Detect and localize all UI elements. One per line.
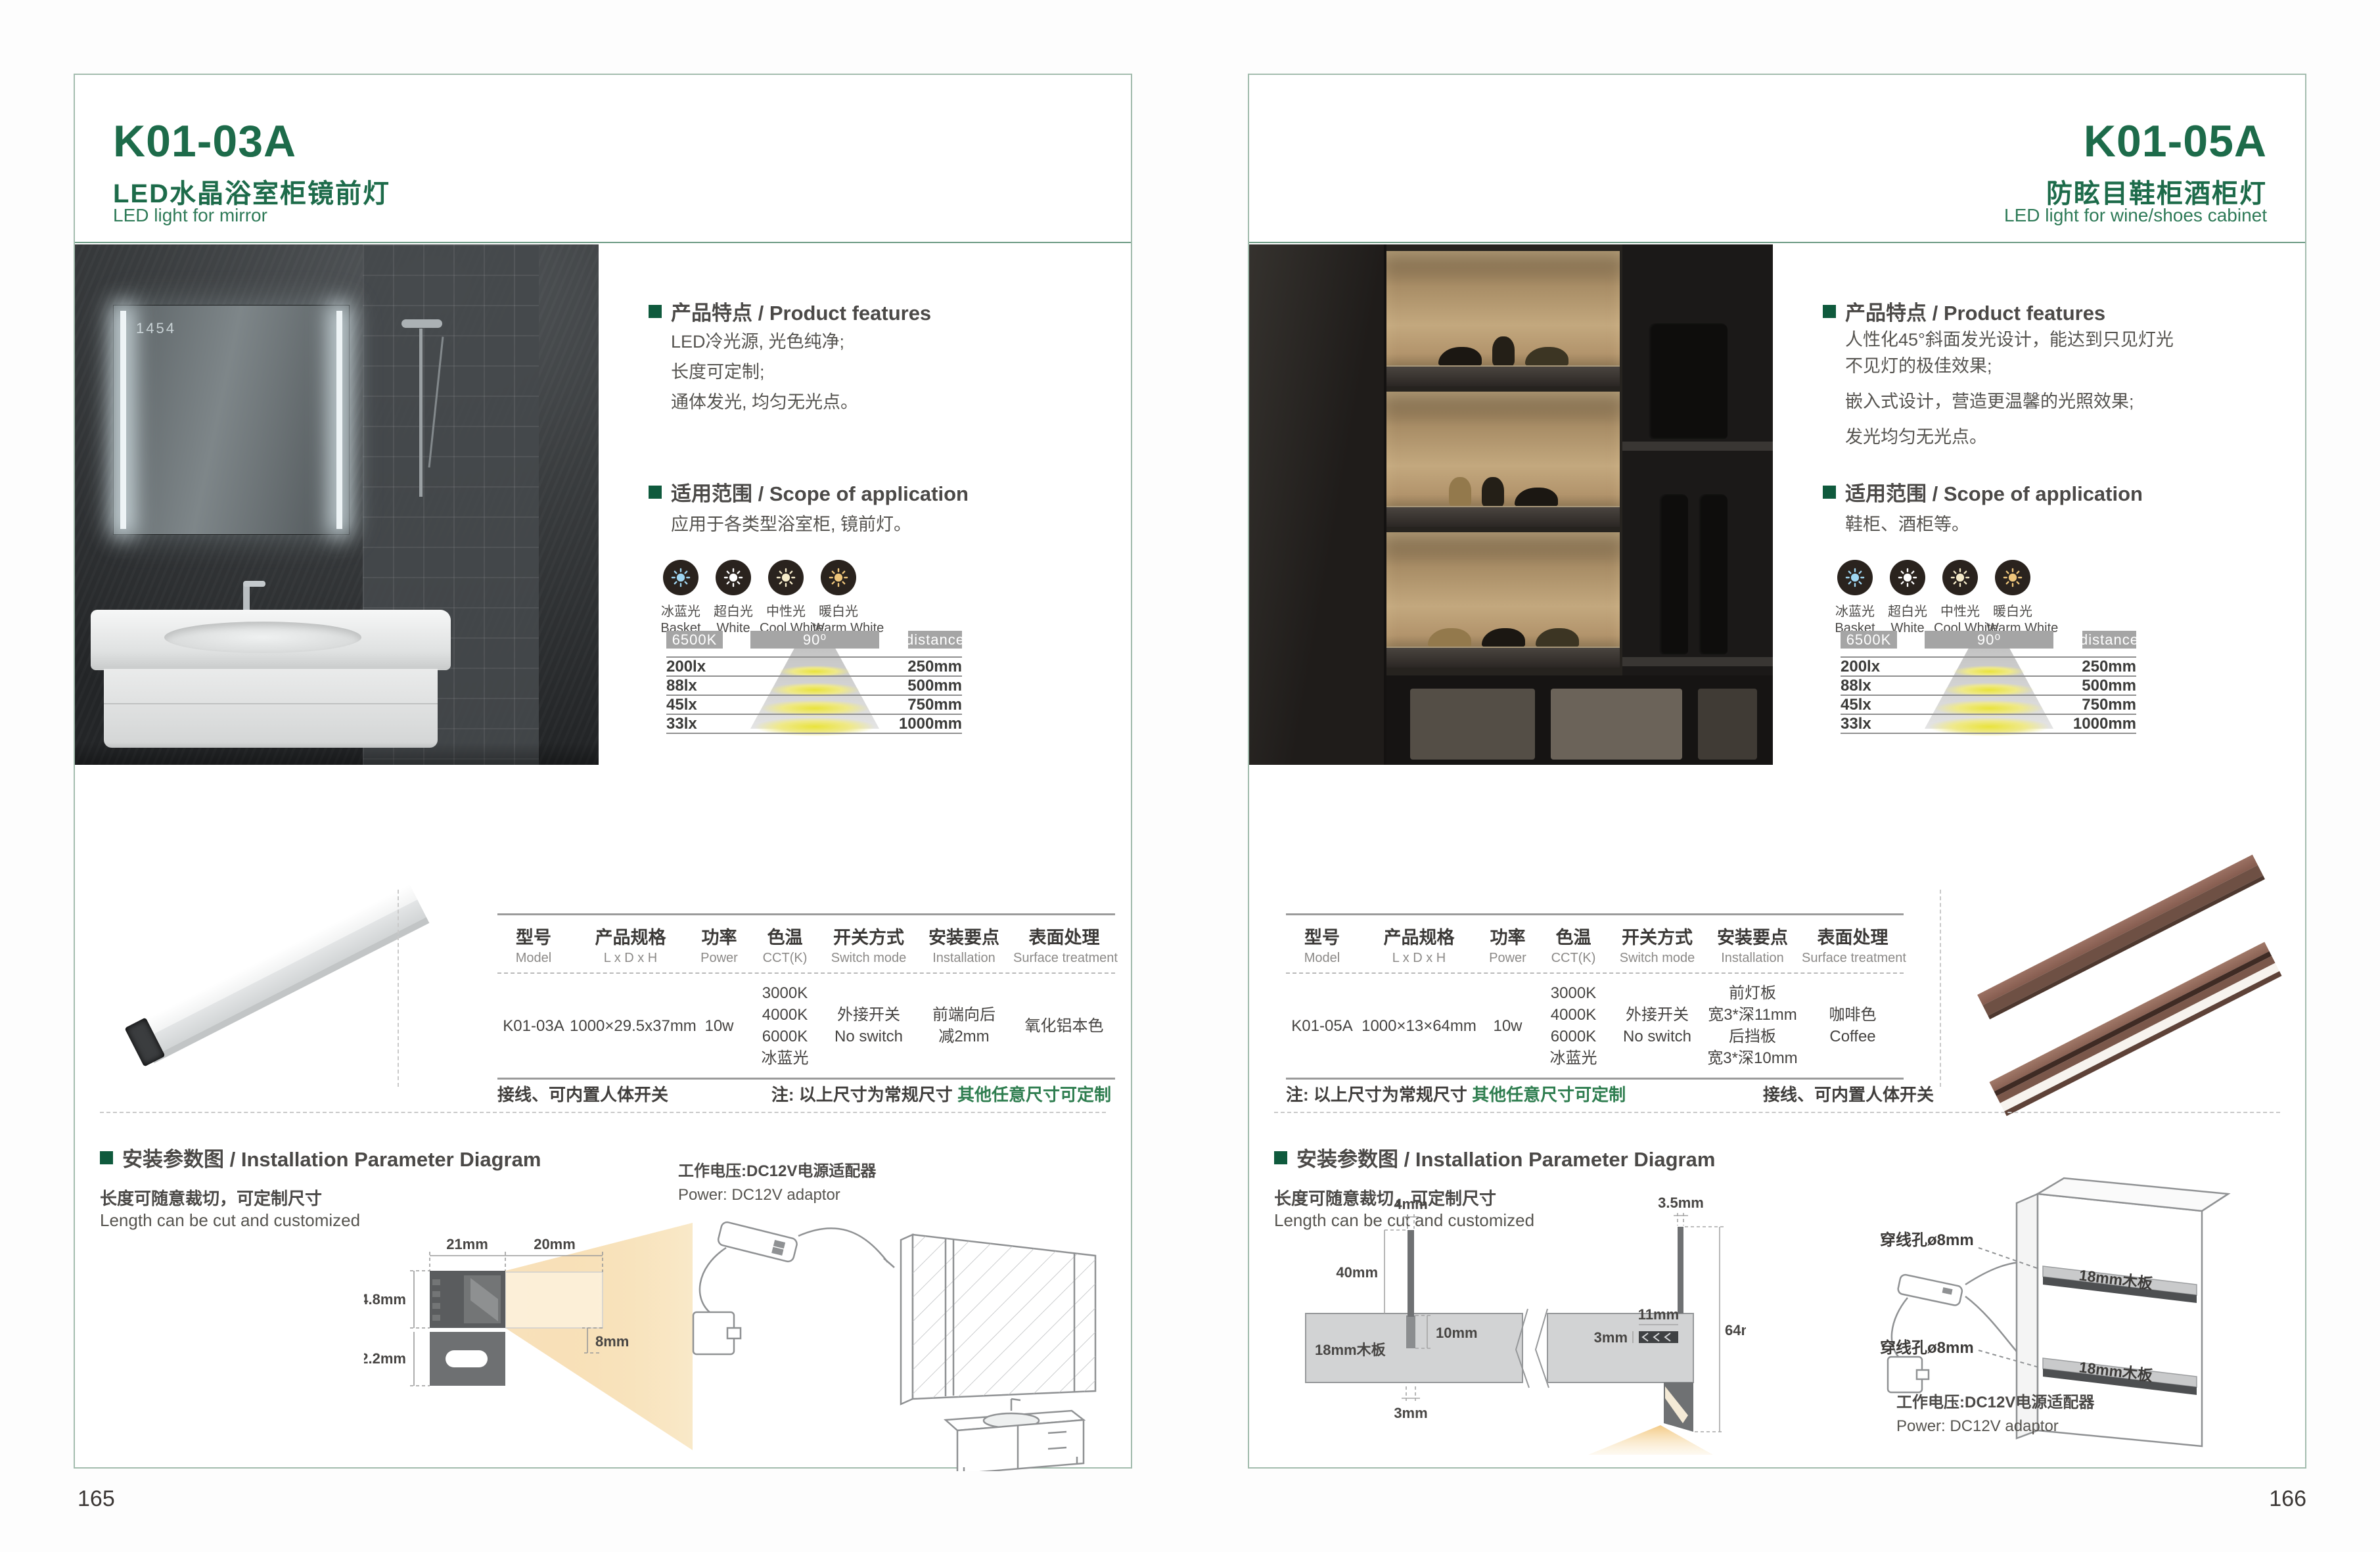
dim-14-8mm: 14.8mm <box>364 1291 406 1308</box>
shoe-silhouette <box>1536 628 1579 648</box>
power-note-en: Power: DC12V adaptor <box>678 1186 876 1204</box>
spec-table: 型号 Model 产品规格 L x D x H 功率 Power 色温 CCT(… <box>1286 913 1904 1080</box>
beam-angle-bar: 90⁰ <box>1925 631 2053 649</box>
beam-angle-bar: 90⁰ <box>750 631 879 649</box>
profile-bottom-lip <box>2004 971 2281 1116</box>
size-note-prefix: 注: 以上尺寸为常规尺寸 <box>1286 1085 1472 1105</box>
spec-header-cn: 表面处理 <box>1013 923 1115 949</box>
light-mode-name-cn: 冰蓝光 <box>654 601 707 620</box>
lux-distance-row: 200lx 250mm <box>666 656 962 675</box>
spec-header-cell: 色温 CCT(K) <box>1536 923 1611 966</box>
size-note: 注: 以上尺寸为常规尺寸 其他任意尺寸可定制 <box>1286 1082 1626 1106</box>
adaptor-and-socket <box>693 1221 894 1354</box>
cct-bar: 6500K <box>1841 631 1897 649</box>
spec-cell: 前端向后 减2mm <box>915 1004 1013 1047</box>
dim-8mm: 8mm <box>595 1333 629 1350</box>
spec-header-en: Model <box>497 951 570 966</box>
spec-header-cn: 功率 <box>691 923 747 949</box>
catalog-page-right: K01-05A 防眩目鞋柜酒柜灯 LED light for wine/shoe… <box>1248 74 2306 1469</box>
spec-header-cell: 开关方式 Switch mode <box>823 923 915 966</box>
lux-distance-rows: 200lx 250mm 88lx 500mm 45lx 750mm 33lx 1… <box>666 656 962 734</box>
scope-text: 鞋柜、酒柜等。 <box>1845 510 1969 536</box>
lux-value: 45lx <box>1841 696 1871 714</box>
section-bullet-icon <box>649 305 662 318</box>
photo-basin <box>164 622 361 653</box>
spec-header-cn: 产品规格 <box>570 923 691 949</box>
light-mode: 中性光 Cool White <box>760 560 812 636</box>
light-mode-name-cn: 冰蓝光 <box>1829 601 1881 620</box>
sun-icon <box>1942 560 1978 595</box>
light-mode: 冰蓝光 Basket <box>654 560 707 636</box>
spec-header-cell: 色温 CCT(K) <box>747 923 823 966</box>
dim-4mm: 4mm <box>1394 1196 1427 1212</box>
right-shelf-board <box>1622 442 1773 451</box>
spec-table: 型号 Model 产品规格 L x D x H 功率 Power 色温 CCT(… <box>497 913 1115 1080</box>
shoe-silhouette <box>1482 477 1504 507</box>
spec-header-cn: 开关方式 <box>823 923 915 949</box>
product-model-title: K01-03A <box>113 116 296 167</box>
light-mode-name-cn: 暖白光 <box>812 601 865 620</box>
spec-cell: 1000×13×64mm <box>1358 1015 1480 1037</box>
wood-board-right <box>1547 1313 1693 1382</box>
lit-shelf <box>1386 392 1620 527</box>
profile-product-image <box>134 867 410 1090</box>
lux-distance-row: 33lx 1000mm <box>666 714 962 734</box>
mirror-clock: 1454 <box>136 320 176 337</box>
lux-value: 33lx <box>1841 715 1871 733</box>
photo-shower-bar <box>419 329 423 497</box>
light-mode: 超白光 White <box>707 560 760 636</box>
photo-left-panel <box>1249 244 1386 765</box>
spec-table-row: K01-03A 1000×29.5x37mm 10w 3000K 4000K 6… <box>497 974 1115 1080</box>
light-mode: 超白光 White <box>1881 560 1934 636</box>
spec-cell: 3000K 4000K 6000K 冰蓝光 <box>1536 982 1611 1069</box>
boot-silhouette <box>1699 494 1728 654</box>
spec-header-en: Model <box>1286 951 1358 966</box>
dim-3mm-groove: 3mm <box>1394 1405 1427 1421</box>
spec-cell: 外接开关 No switch <box>823 1004 915 1047</box>
features-heading-label: 产品特点 / Product features <box>1845 296 2105 326</box>
lux-distance-row: 33lx 1000mm <box>1841 714 2136 734</box>
vanity-drawing <box>946 1399 1084 1471</box>
board-label: 18mm木板 <box>1315 1342 1386 1358</box>
scope-section-heading: 适用范围 / Scope of application <box>649 477 969 507</box>
spec-header-cn: 功率 <box>1480 923 1536 949</box>
feature-item: 人性化45°斜面发光设计，能达到只见灯光 不见灯的极佳效果; <box>1845 327 2279 379</box>
light-mode: 暖白光 Warm White <box>812 560 865 636</box>
spec-header-en: CCT(K) <box>1536 951 1611 966</box>
scope-text: 应用于各类型浴室柜, 镜前灯。 <box>671 510 911 536</box>
photo-floor-shadow <box>75 742 599 765</box>
spec-header-en: Power <box>691 951 747 966</box>
spec-header-cn: 表面处理 <box>1802 923 1904 949</box>
light-mode-icons: 冰蓝光 Basket 超白光 Whi <box>654 560 865 636</box>
spec-header-en: CCT(K) <box>747 951 823 966</box>
dim-12-2mm: 12.2mm <box>364 1350 406 1367</box>
photo-vanity-cabinet <box>104 669 438 748</box>
profile-gap <box>430 1328 505 1332</box>
spec-cell: 3000K 4000K 6000K 冰蓝光 <box>747 982 823 1069</box>
lux-value: 33lx <box>666 715 697 733</box>
shoes-row <box>1392 326 1614 367</box>
spec-cell: 氧化铝本色 <box>1013 1015 1115 1037</box>
shelf-board <box>1386 365 1620 386</box>
spec-cell: 外接开关 No switch <box>1611 1004 1703 1047</box>
spec-header-en: L x D x H <box>1358 951 1480 966</box>
scope-section-heading: 适用范围 / Scope of application <box>1823 477 2143 507</box>
profile-bottom-lip <box>151 917 429 1063</box>
section-bullet-icon <box>1823 486 1836 499</box>
feature-item: 长度可定制; <box>671 357 1105 387</box>
feature-item: LED冷光源, 光色纯净; <box>671 327 1105 357</box>
lux-distance-row: 88lx 500mm <box>666 675 962 695</box>
dim-20mm: 20mm <box>534 1236 576 1252</box>
spec-table-header: 型号 Model 产品规格 L x D x H 功率 Power 色温 CCT(… <box>1286 913 1904 974</box>
lux-value: 200lx <box>1841 658 1880 676</box>
lux-distance-row: 200lx 250mm <box>1841 656 2136 675</box>
wiring-note: 接线、可内置人体开关 <box>497 1082 668 1106</box>
sun-glyph <box>2002 567 2023 588</box>
beam-distance-chart: 6500K 90⁰ distance 200lx 250mm 88lx 500m… <box>1841 631 2136 729</box>
dim-11mm: 11mm <box>1638 1306 1679 1323</box>
distance-bar: distance <box>2082 631 2136 649</box>
light-beam <box>1588 1425 1713 1455</box>
distance-value: 1000mm <box>899 715 962 733</box>
photo-lit-shelf-bay <box>1386 251 1620 673</box>
cable-hole-label: 穿线孔ø8mm <box>1880 1231 1974 1249</box>
recessed-install-cross-section: 4mm 3.5mm 40mm 18mm木板 10mm 3mm 11mm 3mm … <box>1286 1192 1746 1455</box>
spec-header-cell: 产品规格 L x D x H <box>1358 923 1480 966</box>
section-bullet-icon <box>1274 1151 1287 1164</box>
sun-icon <box>1995 560 2030 595</box>
groove <box>1406 1315 1415 1348</box>
features-list: 人性化45°斜面发光设计，能达到只见灯光 不见灯的极佳效果; 嵌入式设计，营造更… <box>1845 327 2279 459</box>
spec-header-cn: 色温 <box>747 923 823 949</box>
distance-value: 750mm <box>907 696 962 714</box>
lux-value: 45lx <box>666 696 697 714</box>
lux-distance-row: 45lx 750mm <box>666 695 962 714</box>
spec-table-header: 型号 Model 产品规格 L x D x H 功率 Power 色温 CCT(… <box>497 913 1115 974</box>
mirror-led-strip-left <box>120 311 126 529</box>
spec-header-cn: 安装要点 <box>1703 923 1802 949</box>
mirror-cabinet-drawing <box>901 1235 1095 1404</box>
shoe-silhouette <box>1428 628 1471 648</box>
spec-header-cn: 开关方式 <box>1611 923 1703 949</box>
installation-section-heading: 安装参数图 / Installation Parameter Diagram <box>100 1143 541 1172</box>
section-bullet-icon <box>649 486 662 499</box>
spec-header-en: Installation <box>1703 951 1802 966</box>
beam-distance-chart: 6500K 90⁰ distance 200lx 250mm 88lx 500m… <box>666 631 962 729</box>
features-heading-label: 产品特点 / Product features <box>671 296 931 326</box>
light-mode: 暖白光 Warm White <box>1986 560 2039 636</box>
dim-40mm: 40mm <box>1336 1264 1378 1281</box>
sun-glyph <box>775 567 796 588</box>
length-note-en: Length can be cut and customized <box>100 1210 360 1231</box>
distance-value: 250mm <box>907 658 962 676</box>
spec-cell: 10w <box>691 1015 747 1037</box>
profile-front-face <box>142 900 426 1057</box>
light-mode: 冰蓝光 Basket <box>1829 560 1881 636</box>
wiring-note: 接线、可内置人体开关 <box>1763 1082 1934 1106</box>
installation-illustration-vanity <box>670 1202 1116 1471</box>
spec-header-en: Surface treatment <box>1802 951 1904 966</box>
size-note: 注: 以上尺寸为常规尺寸 其他任意尺寸可定制 <box>771 1082 1111 1106</box>
spec-table-row: K01-05A 1000×13×64mm 10w 3000K 4000K 600… <box>1286 974 1904 1080</box>
power-note-cn: 工作电压:DC12V电源适配器 <box>1896 1389 2094 1412</box>
installation-section-heading: 安装参数图 / Installation Parameter Diagram <box>1274 1143 1715 1172</box>
spec-header-cell: 表面处理 Surface treatment <box>1802 923 1904 966</box>
spec-header-cell: 型号 Model <box>1286 923 1358 966</box>
features-column: 产品特点 / Product features LED冷光源, 光色纯净; 长度… <box>649 75 1122 798</box>
power-note-en: Power: DC12V adaptor <box>1896 1417 2094 1436</box>
power-note: 工作电压:DC12V电源适配器 Power: DC12V adaptor <box>678 1158 876 1204</box>
product-title-en: LED light for mirror <box>113 205 267 226</box>
photo-faucet-spout <box>243 581 265 587</box>
shelf-board <box>1386 506 1620 527</box>
features-section-heading: 产品特点 / Product features <box>649 296 931 326</box>
distance-value: 1000mm <box>2073 715 2136 733</box>
scope-heading-label: 适用范围 / Scope of application <box>1845 477 2143 507</box>
lux-value: 200lx <box>666 658 706 676</box>
scope-heading-label: 适用范围 / Scope of application <box>671 477 969 507</box>
spec-header-en: Switch mode <box>823 951 915 966</box>
size-note-custom: 其他任意尺寸可定制 <box>1472 1085 1626 1105</box>
light-mode-name-cn: 超白光 <box>707 601 760 620</box>
bracket-slot <box>446 1350 488 1367</box>
shoe-box <box>1551 689 1682 760</box>
shoe-silhouette <box>1492 336 1515 367</box>
profile-top-face <box>135 884 418 1040</box>
shoe-box <box>1410 689 1535 760</box>
spec-header-cell: 型号 Model <box>497 923 570 966</box>
distance-value: 750mm <box>2082 696 2136 714</box>
spec-header-cn: 型号 <box>497 923 570 949</box>
cct-bar: 6500K <box>666 631 723 649</box>
features-column: 产品特点 / Product features 人性化45°斜面发光设计，能达到… <box>1823 75 2296 798</box>
dim-10mm: 10mm <box>1436 1325 1478 1341</box>
size-note-prefix: 注: 以上尺寸为常规尺寸 <box>771 1085 957 1105</box>
shelf-board <box>1386 647 1620 668</box>
distance-bar: distance <box>908 631 962 649</box>
power-note: 工作电压:DC12V电源适配器 Power: DC12V adaptor <box>1896 1389 2094 1436</box>
light-mode-name-cn: 暖白光 <box>1986 601 2039 620</box>
spec-header-en: Surface treatment <box>1013 951 1115 966</box>
front-panel-blade <box>1407 1230 1414 1317</box>
spec-cell: 咖啡色 Coffee <box>1802 1004 1904 1047</box>
lux-distance-rows: 200lx 250mm 88lx 500mm 45lx 750mm 33lx 1… <box>1841 656 2136 734</box>
dashed-separator-horizontal <box>1274 1112 2280 1113</box>
dashed-separator-vertical <box>398 890 399 1087</box>
sun-glyph <box>828 567 849 588</box>
spec-cell: 10w <box>1480 1015 1536 1037</box>
size-note-custom: 其他任意尺寸可定制 <box>957 1085 1111 1105</box>
spec-header-cn: 产品规格 <box>1358 923 1480 949</box>
dim-3mm-channel: 3mm <box>1594 1329 1628 1346</box>
dim-64mm: 64mm <box>1725 1322 1746 1338</box>
lux-value: 88lx <box>1841 677 1871 695</box>
shoes-row <box>1392 467 1614 507</box>
spec-header-cell: 安装要点 Installation <box>1703 923 1802 966</box>
spec-header-cell: 表面处理 Surface treatment <box>1013 923 1115 966</box>
power-note-cn: 工作电压:DC12V电源适配器 <box>678 1158 876 1181</box>
lux-distance-row: 45lx 750mm <box>1841 695 2136 714</box>
right-shelf-board <box>1622 657 1773 666</box>
shoe-box <box>1698 689 1757 760</box>
sun-glyph <box>1897 567 1918 588</box>
boot-silhouette <box>1649 323 1728 439</box>
spec-header-en: Installation <box>915 951 1013 966</box>
aluminium-profile-bar <box>135 884 430 1063</box>
spec-cell: 1000×29.5x37mm <box>570 1015 691 1037</box>
feature-item: 嵌入式设计，营造更温馨的光照效果; <box>1845 388 2279 415</box>
profile-top-face <box>1989 942 2269 1091</box>
lit-shelf <box>1386 251 1620 386</box>
distance-value: 500mm <box>2082 677 2136 695</box>
spec-header-cell: 功率 Power <box>1480 923 1536 966</box>
distance-value: 500mm <box>907 677 962 695</box>
spec-header-cell: 开关方式 Switch mode <box>1611 923 1703 966</box>
shoes-row <box>1392 607 1614 648</box>
page-number: 166 <box>2175 1486 2306 1512</box>
shoe-silhouette <box>1525 347 1568 367</box>
light-mode-name-cn: 中性光 <box>760 601 812 620</box>
sun-icon <box>821 560 856 595</box>
section-bullet-icon <box>100 1151 113 1164</box>
boot-silhouette <box>1659 494 1688 654</box>
distance-value: 250mm <box>2082 658 2136 676</box>
spec-cell: K01-05A <box>1286 1015 1358 1037</box>
spec-header-cn: 型号 <box>1286 923 1358 949</box>
light-mode-name-cn: 中性光 <box>1934 601 1986 620</box>
section-bullet-icon <box>1823 305 1836 318</box>
sun-icon <box>716 560 751 595</box>
page-number: 165 <box>78 1486 115 1512</box>
product-photo-bathroom: 1454 <box>75 244 599 765</box>
adaptor-and-socket <box>1888 1262 2030 1392</box>
catalog-spread: { "shared": { "colors": { "accent_green"… <box>0 0 2380 1552</box>
installation-heading-label: 安装参数图 / Installation Parameter Diagram <box>122 1143 541 1172</box>
photo-sink-counter <box>91 610 451 670</box>
lit-shelf <box>1386 532 1620 668</box>
sun-glyph <box>1844 567 1865 588</box>
photo-shower-head <box>401 319 442 328</box>
lux-value: 88lx <box>666 677 697 695</box>
light-mode-name-cn: 超白光 <box>1881 601 1934 620</box>
cable-hole-label: 穿线孔ø8mm <box>1880 1338 1974 1357</box>
dashed-separator-horizontal <box>100 1112 1106 1113</box>
spec-header-cn: 安装要点 <box>915 923 1013 949</box>
sun-glyph <box>670 567 691 588</box>
catalog-page-left: K01-03A LED水晶浴室柜镜前灯 LED light for mirror… <box>74 74 1132 1469</box>
length-note-cn: 长度可随意裁切，可定制尺寸 <box>100 1185 322 1210</box>
feature-item: 通体发光, 均匀无光点。 <box>671 387 1105 417</box>
sun-glyph <box>1950 567 1971 588</box>
sun-icon <box>1890 560 1925 595</box>
sun-icon <box>1837 560 1873 595</box>
shoe-silhouette <box>1515 488 1558 507</box>
features-list: LED冷光源, 光色纯净; 长度可定制; 通体发光, 均匀无光点。 <box>671 327 1105 417</box>
spec-header-en: Switch mode <box>1611 951 1703 966</box>
profile-product-image <box>1971 860 2286 1097</box>
rear-panel-blade <box>1678 1227 1683 1313</box>
feature-item: 发光均匀无光点。 <box>1845 424 2279 450</box>
spec-header-cell: 安装要点 Installation <box>915 923 1013 966</box>
dim-3-5mm: 3.5mm <box>1658 1195 1704 1211</box>
light-mode-icons: 冰蓝光 Basket 超白光 Whi <box>1829 560 2039 636</box>
photo-vanity-drawer-line <box>104 703 438 704</box>
photo-bottom-boxes <box>1386 675 1773 765</box>
spec-header-en: L x D x H <box>570 951 691 966</box>
spec-cell: K01-03A <box>497 1015 570 1037</box>
dim-21mm: 21mm <box>446 1236 488 1252</box>
spec-header-cell: 产品规格 L x D x H <box>570 923 691 966</box>
profile-cross-section-diagram: 21mm 20mm 14.8mm 12.2mm 8mm <box>364 1221 693 1465</box>
features-section-heading: 产品特点 / Product features <box>1823 296 2105 326</box>
sun-icon <box>768 560 804 595</box>
photo-led-mirror: 1454 <box>113 305 350 535</box>
product-photo-shoe-cabinet <box>1249 244 1773 765</box>
lux-distance-row: 88lx 500mm <box>1841 675 2136 695</box>
spec-header-cell: 功率 Power <box>691 923 747 966</box>
installation-heading-label: 安装参数图 / Installation Parameter Diagram <box>1296 1143 1715 1172</box>
glass-panel <box>505 1272 603 1328</box>
spec-header-cn: 色温 <box>1536 923 1611 949</box>
dashed-separator-vertical <box>1940 890 1941 1087</box>
shoe-silhouette <box>1482 628 1525 648</box>
spec-cell: 前灯板 宽3*深11mm 后挡板 宽3*深10mm <box>1703 982 1802 1069</box>
sun-glyph <box>723 567 744 588</box>
shoe-silhouette <box>1449 477 1471 507</box>
sun-icon <box>663 560 698 595</box>
spec-header-en: Power <box>1480 951 1536 966</box>
mirror-led-strip-right <box>336 311 342 529</box>
shoe-silhouette <box>1438 347 1482 367</box>
light-mode: 中性光 Cool White <box>1934 560 1986 636</box>
